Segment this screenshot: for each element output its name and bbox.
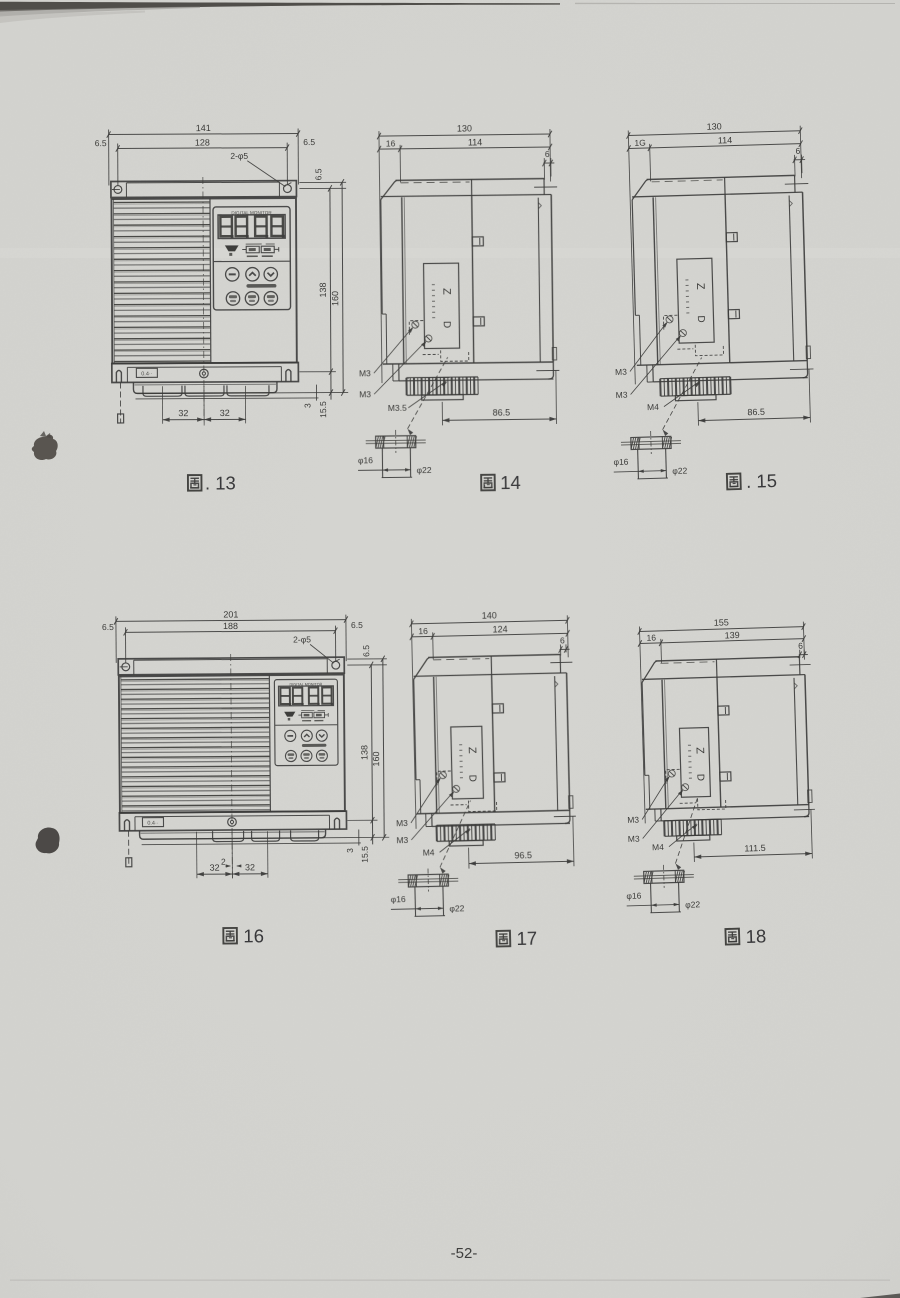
svg-text:6.5: 6.5 [95, 138, 107, 148]
svg-text:6: 6 [560, 635, 565, 645]
svg-text:32: 32 [220, 408, 230, 418]
svg-text:M4: M4 [652, 842, 664, 852]
svg-text:Z: Z [694, 747, 706, 754]
svg-text:160: 160 [371, 751, 381, 766]
svg-text:D: D [441, 321, 452, 328]
svg-text:φ22: φ22 [417, 465, 432, 475]
svg-text:M3: M3 [396, 835, 408, 845]
svg-text:18: 18 [745, 925, 766, 947]
svg-text:-52-: -52- [451, 1245, 478, 1262]
svg-text:M3: M3 [396, 818, 408, 828]
svg-text:φ16: φ16 [391, 894, 406, 904]
svg-text:M4: M4 [647, 402, 659, 412]
svg-text:M3: M3 [628, 834, 640, 844]
svg-text:D: D [466, 775, 477, 782]
svg-text:6.5: 6.5 [102, 622, 114, 632]
svg-text:3: 3 [303, 403, 313, 408]
svg-text:6.5: 6.5 [351, 620, 363, 630]
svg-text:15.5: 15.5 [360, 846, 370, 863]
svg-text:16: 16 [418, 626, 428, 636]
svg-text:114: 114 [468, 137, 482, 147]
svg-text:16: 16 [646, 632, 656, 642]
svg-text:86.5: 86.5 [493, 408, 511, 418]
svg-text:0.4··: 0.4·· [141, 371, 153, 377]
svg-text:6.5: 6.5 [361, 645, 371, 657]
svg-text:111.5: 111.5 [744, 843, 765, 854]
svg-text:201: 201 [223, 609, 238, 619]
svg-text:M3: M3 [616, 390, 628, 400]
svg-text:32: 32 [245, 862, 255, 872]
svg-text:138: 138 [318, 282, 328, 297]
svg-text:32: 32 [178, 408, 188, 418]
svg-text:M4: M4 [423, 847, 435, 857]
svg-text:14: 14 [500, 472, 521, 493]
svg-text:1G: 1G [634, 138, 646, 148]
svg-text:16: 16 [386, 138, 396, 148]
svg-text:0.4··: 0.4·· [147, 821, 159, 827]
svg-text:140: 140 [482, 610, 497, 620]
svg-text:M3: M3 [359, 389, 371, 399]
svg-text:16: 16 [243, 925, 264, 946]
svg-text:124: 124 [492, 624, 507, 634]
svg-text:M3: M3 [627, 815, 639, 825]
svg-text:. 15: . 15 [746, 470, 777, 492]
svg-text:φ16: φ16 [613, 457, 629, 467]
svg-text:96.5: 96.5 [514, 850, 532, 860]
svg-text:139: 139 [725, 630, 740, 640]
svg-text:6: 6 [795, 146, 800, 156]
svg-text:M3.5: M3.5 [388, 403, 407, 413]
svg-text:φ16: φ16 [358, 455, 373, 465]
svg-text:D: D [695, 315, 706, 323]
svg-text:2-φ5: 2-φ5 [230, 151, 248, 161]
svg-text:32: 32 [210, 863, 220, 873]
svg-text:114: 114 [718, 135, 733, 145]
svg-text:138: 138 [359, 745, 369, 760]
svg-text:6: 6 [545, 149, 550, 159]
svg-text:D: D [694, 774, 705, 782]
svg-text:15.5: 15.5 [318, 401, 328, 418]
svg-text:3: 3 [345, 848, 355, 853]
svg-text:155: 155 [714, 617, 729, 627]
svg-text:Z: Z [440, 288, 452, 295]
svg-text:17: 17 [516, 928, 537, 949]
svg-text:128: 128 [195, 137, 210, 147]
svg-text:2-φ5: 2-φ5 [293, 634, 311, 644]
svg-text:M3: M3 [615, 367, 627, 377]
svg-text:2: 2 [221, 857, 226, 867]
svg-text:φ22: φ22 [672, 465, 688, 475]
svg-text:130: 130 [707, 121, 722, 131]
svg-text:φ22: φ22 [449, 903, 464, 913]
svg-text:6.5: 6.5 [313, 168, 323, 180]
svg-text:. 13: . 13 [205, 472, 236, 493]
svg-text:86.5: 86.5 [747, 407, 765, 417]
svg-text:M3: M3 [359, 368, 371, 378]
svg-text:141: 141 [196, 123, 211, 133]
svg-text:160: 160 [330, 291, 340, 306]
svg-text:6: 6 [798, 641, 803, 651]
svg-text:188: 188 [223, 621, 238, 631]
svg-text:130: 130 [457, 123, 472, 133]
svg-text:Z: Z [694, 283, 706, 290]
svg-text:6.5: 6.5 [303, 137, 315, 147]
svg-text:φ22: φ22 [685, 899, 701, 909]
svg-text:φ16: φ16 [626, 891, 642, 901]
svg-text:Z: Z [466, 747, 478, 754]
